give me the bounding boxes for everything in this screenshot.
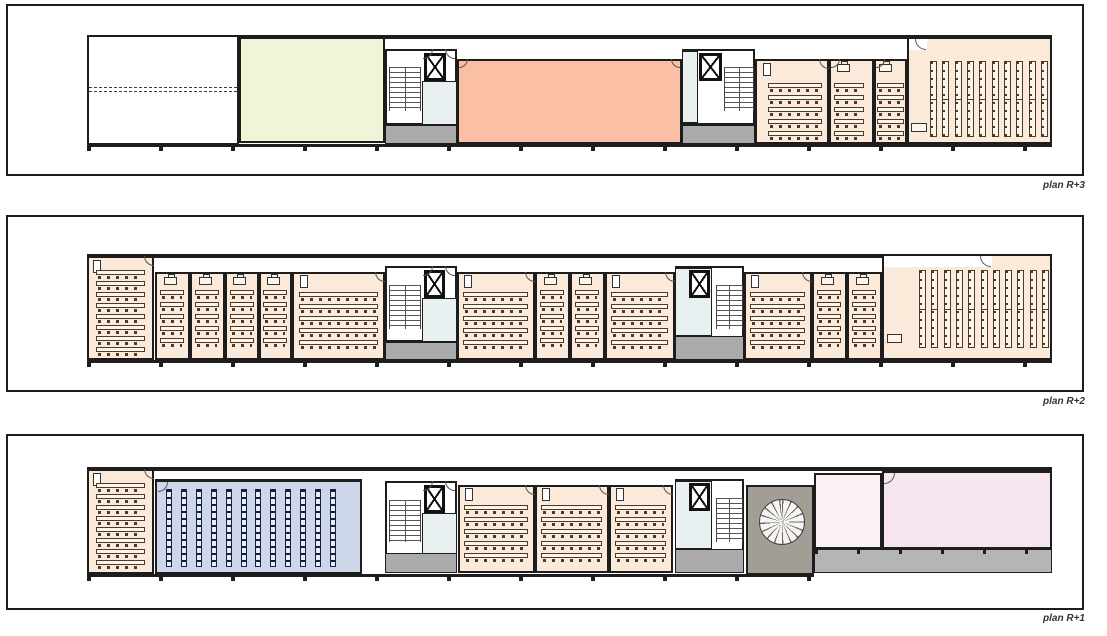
desk-row (96, 281, 145, 286)
shelf-row (315, 489, 321, 567)
chair-row (466, 535, 526, 538)
staircase-west (389, 285, 421, 329)
desk-row (263, 302, 287, 307)
chair-row (770, 89, 820, 92)
desk-row (615, 505, 666, 510)
elevator-east (699, 53, 722, 81)
desk-row (230, 290, 254, 295)
shelf-row (330, 489, 336, 567)
study-carrel-row (942, 61, 949, 137)
chair-row (854, 296, 874, 299)
chair-row (232, 296, 252, 299)
shelf-row (166, 489, 172, 567)
desk-row (768, 131, 822, 136)
shelf-row (270, 489, 276, 567)
study-hall (882, 254, 1052, 360)
chair-row (98, 276, 143, 279)
desk-row (230, 314, 254, 319)
desk-row (750, 328, 805, 333)
chair-row (98, 353, 143, 356)
chair-row (265, 332, 285, 335)
desk-row (463, 328, 528, 333)
facade-ledge (87, 144, 1052, 152)
roof-terrace-grid (87, 35, 239, 145)
chair-row (197, 344, 217, 347)
chair-row (98, 309, 143, 312)
chair-row (752, 346, 803, 349)
study-carrel-row (930, 61, 937, 137)
chair-row (542, 320, 562, 323)
desk-row (834, 119, 864, 124)
desk-row (463, 340, 528, 345)
desk-row (195, 290, 219, 295)
desk-row (541, 505, 602, 510)
lift-lobby-west (422, 513, 457, 555)
shelf-row (285, 489, 291, 567)
chair-row (836, 101, 862, 104)
study-carrel-row (955, 61, 962, 137)
spiral-staircase (759, 499, 805, 545)
chair-row (98, 287, 143, 290)
landing-west (385, 125, 457, 144)
landing-west (385, 342, 457, 360)
chair-row (98, 320, 143, 323)
chair-row (770, 101, 820, 104)
desk-row (96, 292, 145, 297)
chair-row (98, 342, 143, 345)
cabinet (837, 64, 850, 72)
desk-row (540, 338, 564, 343)
chair-row (98, 544, 143, 547)
desk-row (834, 131, 864, 136)
desk-row (464, 529, 528, 534)
chair-row (617, 511, 664, 514)
staircase-west (389, 67, 421, 111)
desk-row (541, 541, 602, 546)
chair-row (162, 332, 182, 335)
auditorium (457, 59, 682, 144)
chair-row (265, 320, 285, 323)
chair-row (98, 566, 143, 569)
chair-row (819, 332, 839, 335)
chair-row (543, 523, 600, 526)
chair-row (301, 346, 376, 349)
desk-row (611, 316, 668, 321)
study-carrel-row (931, 270, 938, 348)
desk-row (615, 517, 666, 522)
desk-row (299, 316, 378, 321)
desk-row (160, 338, 184, 343)
chair-row (836, 125, 862, 128)
elevator-east (689, 483, 710, 511)
desk-row (877, 107, 904, 112)
plan-frame-r3 (6, 4, 1084, 176)
chair-row (197, 296, 217, 299)
study-carrel-row (979, 61, 986, 137)
lift-lobby-west (422, 298, 457, 342)
chair-row (197, 320, 217, 323)
desk-row (96, 505, 145, 510)
desk-row (611, 340, 668, 345)
desk-row (96, 549, 145, 554)
hall (882, 471, 1052, 549)
shelf-row (211, 489, 217, 567)
desk-row (541, 529, 602, 534)
desk-row (96, 560, 145, 565)
desk-row (263, 326, 287, 331)
desk-row (615, 529, 666, 534)
study-carrel-row (1042, 270, 1049, 348)
desk-row (540, 314, 564, 319)
desk-row (263, 290, 287, 295)
desk-row (464, 541, 528, 546)
desk-row (575, 314, 599, 319)
desk-row (615, 553, 666, 558)
chair-row (577, 344, 597, 347)
desk-row (230, 338, 254, 343)
chair-row (162, 296, 182, 299)
desk-row (834, 83, 864, 88)
chair-row (613, 298, 666, 301)
desk-row (160, 326, 184, 331)
desk-row (615, 541, 666, 546)
chair-row (613, 310, 666, 313)
foyer (814, 473, 882, 549)
desk-row (195, 338, 219, 343)
chair-row (197, 332, 217, 335)
desk-row (540, 290, 564, 295)
plan-label-r1: plan R+1 (1043, 613, 1085, 624)
teacher-desk (300, 275, 308, 288)
teacher-desk (616, 488, 624, 501)
desk (887, 334, 902, 343)
plan-drawing-r1 (87, 467, 1052, 578)
chair-row (98, 500, 143, 503)
study-carrel-row (992, 61, 999, 137)
desk-row (852, 326, 876, 331)
teacher-desk (542, 488, 550, 501)
chair-row (854, 308, 874, 311)
chair-row (542, 296, 562, 299)
desk-row (96, 538, 145, 543)
desk-row (575, 302, 599, 307)
chair-row (542, 344, 562, 347)
desk-row (877, 119, 904, 124)
chair-row (98, 489, 143, 492)
desk-row (230, 326, 254, 331)
chair-row (465, 298, 526, 301)
desk-row (160, 302, 184, 307)
desk (911, 123, 927, 132)
desk-row (195, 314, 219, 319)
desk-row (263, 338, 287, 343)
chair-row (879, 113, 902, 116)
chair-row (770, 113, 820, 116)
study-carrel-row (968, 270, 975, 348)
study-carrel-row (919, 270, 926, 348)
chair-row (854, 320, 874, 323)
chair-row (617, 535, 664, 538)
chair-row (466, 523, 526, 526)
chair-row (232, 308, 252, 311)
desk-row (96, 303, 145, 308)
chair-row (819, 320, 839, 323)
chair-row (752, 322, 803, 325)
teacher-desk (751, 275, 759, 288)
desk-row (877, 131, 904, 136)
chair-row (577, 308, 597, 311)
desk-row (299, 292, 378, 297)
desk-row (768, 119, 822, 124)
desk-row (750, 292, 805, 297)
landing-east (675, 336, 744, 360)
chair-row (577, 320, 597, 323)
chair-row (465, 310, 526, 313)
grid-dashed-line (89, 87, 237, 92)
study-carrel-row (944, 270, 951, 348)
chair-row (465, 346, 526, 349)
desk-row (750, 340, 805, 345)
desk-row (96, 314, 145, 319)
chair-row (232, 320, 252, 323)
desk-row (817, 326, 841, 331)
desk-row (299, 304, 378, 309)
study-carrel-row (1016, 61, 1023, 137)
desk-row (195, 302, 219, 307)
desk-row (817, 338, 841, 343)
desk-row (575, 326, 599, 331)
chair-row (836, 137, 862, 140)
study-carrel-row (1041, 61, 1048, 137)
shelf-row (255, 489, 261, 567)
desk-row (464, 553, 528, 558)
desk-row (96, 336, 145, 341)
chair-row (854, 344, 874, 347)
cabinet (579, 277, 592, 285)
cabinet (199, 277, 212, 285)
desk-row (852, 338, 876, 343)
desk-row (299, 340, 378, 345)
chair-row (617, 523, 664, 526)
desk-row (96, 325, 145, 330)
desk-row (575, 338, 599, 343)
chair-row (770, 137, 820, 140)
cabinet (164, 277, 177, 285)
desk-row (160, 290, 184, 295)
chair-row (466, 547, 526, 550)
desk-row (877, 83, 904, 88)
cabinet (233, 277, 246, 285)
study-carrel-row (1029, 61, 1036, 137)
chair-row (543, 547, 600, 550)
chair-row (752, 334, 803, 337)
staircase-east (716, 498, 743, 542)
chair-row (265, 344, 285, 347)
chair-row (617, 547, 664, 550)
desk-row (817, 314, 841, 319)
terrace (814, 549, 1052, 573)
desk-row (852, 290, 876, 295)
desk-row (160, 314, 184, 319)
chair-row (542, 332, 562, 335)
desk-row (263, 314, 287, 319)
chair-row (819, 308, 839, 311)
chair-row (879, 101, 902, 104)
chair-row (301, 310, 376, 313)
chair-row (613, 322, 666, 325)
desk-row (768, 107, 822, 112)
shelf-row (241, 489, 247, 567)
desk-row (464, 505, 528, 510)
desk-row (230, 302, 254, 307)
chair-row (879, 137, 902, 140)
desk-row (541, 517, 602, 522)
desk-row (96, 483, 145, 488)
desk-row (463, 316, 528, 321)
chair-row (466, 559, 526, 562)
desk-row (464, 517, 528, 522)
plan-frame-r1 (6, 434, 1084, 610)
chair-row (98, 522, 143, 525)
chair-row (752, 310, 803, 313)
landing-west (385, 553, 457, 573)
desk-row (611, 292, 668, 297)
chair-row (854, 332, 874, 335)
shelf-row (226, 489, 232, 567)
staircase-east (716, 285, 743, 329)
desk-row (96, 347, 145, 352)
desk-row (817, 290, 841, 295)
plan-label-r3: plan R+3 (1043, 180, 1085, 191)
chair-row (543, 559, 600, 562)
elevator-east (689, 270, 710, 298)
teacher-desk (612, 275, 620, 288)
cabinet (856, 277, 869, 285)
desk-row (540, 302, 564, 307)
plan-drawing-r3 (87, 35, 1052, 149)
chair-row (465, 322, 526, 325)
chair-row (577, 296, 597, 299)
lift-lobby-east (682, 51, 698, 123)
plan-label-r2: plan R+2 (1043, 396, 1085, 407)
lift-lobby-west (422, 81, 457, 125)
chair-row (98, 511, 143, 514)
chair-row (265, 308, 285, 311)
desk-row (768, 83, 822, 88)
study-carrel-row (1004, 61, 1011, 137)
desk-row (852, 302, 876, 307)
plan-frame-r2 (6, 215, 1084, 392)
chair-row (232, 344, 252, 347)
desk-row (463, 292, 528, 297)
cabinet (267, 277, 280, 285)
study-carrel-row (1030, 270, 1037, 348)
staircase-west (389, 500, 421, 542)
shelf-row (196, 489, 202, 567)
floor-plans-sheet: { "document": { "type": "architectural-f… (0, 0, 1107, 636)
chair-row (265, 296, 285, 299)
teacher-desk (763, 63, 771, 76)
study-carrel-row (993, 270, 1000, 348)
chair-row (819, 296, 839, 299)
desk-row (575, 290, 599, 295)
desk-row (834, 95, 864, 100)
study-carrel-row (956, 270, 963, 348)
chair-row (98, 555, 143, 558)
chair-row (466, 511, 526, 514)
chair-row (98, 298, 143, 301)
chair-row (770, 125, 820, 128)
chair-row (879, 89, 902, 92)
chair-row (613, 346, 666, 349)
desk-row (852, 314, 876, 319)
study-carrel-row (981, 270, 988, 348)
teacher-desk (465, 488, 473, 501)
study-carrel-row (967, 61, 974, 137)
desk-row (195, 326, 219, 331)
chair-row (543, 535, 600, 538)
facade-ledge (87, 360, 1052, 368)
cabinet (821, 277, 834, 285)
chair-row (752, 298, 803, 301)
facade-ledge (87, 574, 814, 582)
chair-row (197, 308, 217, 311)
desk-row (541, 553, 602, 558)
chair-row (465, 334, 526, 337)
desk-row (96, 494, 145, 499)
desk-row (768, 95, 822, 100)
desk-row (611, 328, 668, 333)
shelf-row (181, 489, 187, 567)
desk-row (817, 302, 841, 307)
cabinet (544, 277, 557, 285)
chair-row (162, 344, 182, 347)
desk-row (96, 516, 145, 521)
desk-row (96, 270, 145, 275)
chair-row (617, 559, 664, 562)
chair-row (543, 511, 600, 514)
desk-row (750, 316, 805, 321)
staircase-east (724, 67, 754, 111)
chair-row (162, 308, 182, 311)
chair-row (836, 113, 862, 116)
study-carrel-row (1017, 270, 1024, 348)
chair-row (542, 308, 562, 311)
desk-row (463, 304, 528, 309)
chair-row (232, 332, 252, 335)
chair-row (301, 322, 376, 325)
desk-row (611, 304, 668, 309)
chair-row (836, 89, 862, 92)
desk-row (96, 527, 145, 532)
landing-east (682, 125, 755, 144)
chair-row (577, 332, 597, 335)
chair-row (98, 331, 143, 334)
desk-row (750, 304, 805, 309)
chair-row (98, 533, 143, 536)
corridor-notch (884, 256, 992, 267)
desk-row (540, 326, 564, 331)
chair-row (162, 320, 182, 323)
multipurpose-room (239, 37, 385, 143)
study-carrel-row (1005, 270, 1012, 348)
teacher-desk (464, 275, 472, 288)
chair-row (879, 125, 902, 128)
shelf-row (300, 489, 306, 567)
plan-drawing-r2 (87, 254, 1052, 365)
chair-row (613, 334, 666, 337)
landing-east (675, 549, 744, 573)
